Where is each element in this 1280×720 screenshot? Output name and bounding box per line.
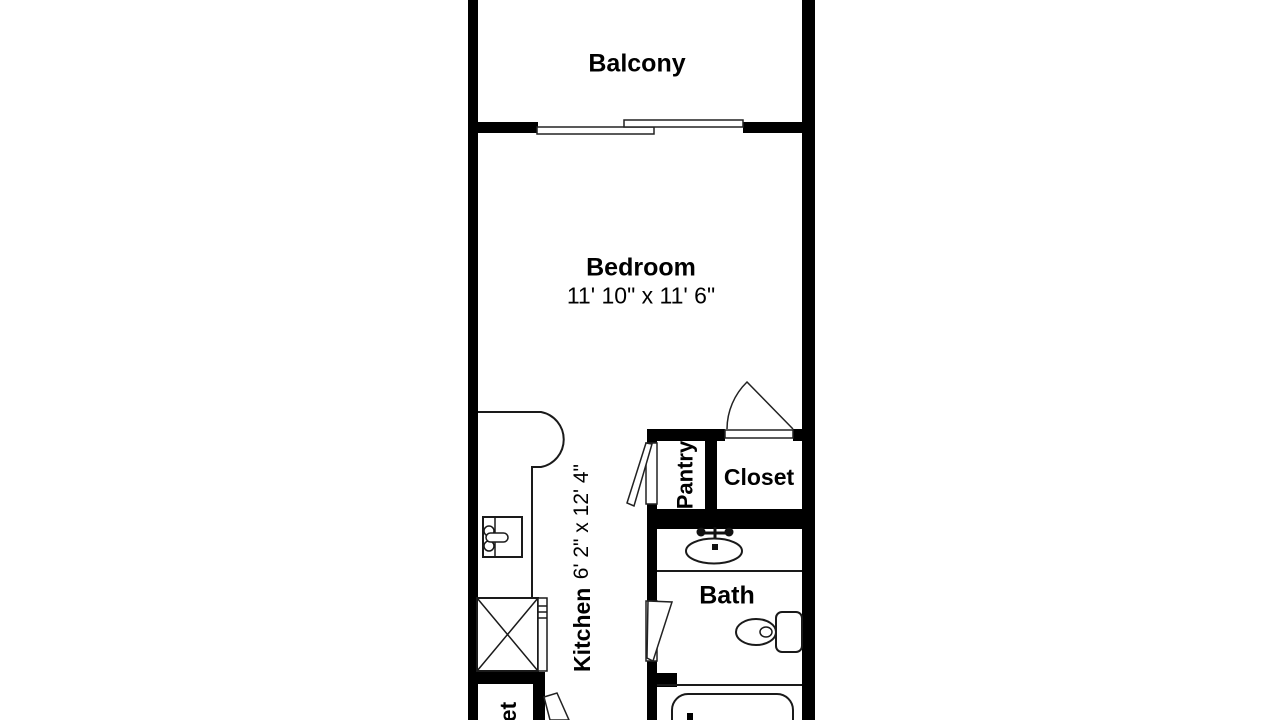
lower-closet-right-wall [533,682,545,720]
balcony-label: Balcony [588,50,685,79]
toilet-icon [736,612,802,652]
pantry-label: Pantry [671,439,698,511]
bathroom-sink-icon [686,527,742,564]
lower-closet-label: Closet [493,700,521,720]
kitchen-label: Kitchen 6' 2" x 12' 4" [569,462,595,674]
closet-top-wall-right [793,429,802,441]
sliding-door-panel-lower [537,127,654,134]
closet-door-threshold [725,430,793,438]
floor-plan-drawing [0,0,1280,720]
pantry-bath-divider-wall [647,509,815,529]
kitchen-arch-and-counter-edge [478,412,564,598]
closet-name: Closet [724,464,794,490]
bedroom-dimensions: 11' 10" x 11' 6" [567,282,715,308]
counter-return-strip [538,598,547,671]
bath-name: Bath [699,582,755,611]
sliding-door-panel-upper [624,120,743,127]
pantry-name: Pantry [672,439,697,511]
balcony-name: Balcony [588,50,685,79]
balcony-sill-right [743,122,815,133]
cutoff-text-mark [687,713,693,720]
bathtub-icon [672,694,793,720]
bath-label: Bath [699,582,755,611]
bath-left-wall-bottom [647,661,657,720]
balcony-sill-left [468,122,538,133]
kitchen-dimensions: 6' 2" x 12' 4" [570,462,594,581]
floor-plan-canvas: Balcony Bedroom 11' 10" x 11' 6" Kitchen… [0,0,1280,720]
closet-label: Closet [724,464,794,490]
bath-door-leaf [647,601,672,661]
bedroom-label: Bedroom 11' 10" x 11' 6" [567,253,715,308]
appliance-icon [477,598,547,671]
kitchen-sink-icon [483,517,522,557]
lower-closet-name: Closet [495,700,521,720]
bath-left-wall-top [647,529,657,601]
lower-closet-door-leaf [544,693,569,720]
bedroom-name: Bedroom [567,253,715,282]
pantry-left-wall-top [647,429,657,443]
closet-door-swing [727,382,793,429]
kitchen-name: Kitchen [569,586,595,674]
right-wall [802,0,815,720]
